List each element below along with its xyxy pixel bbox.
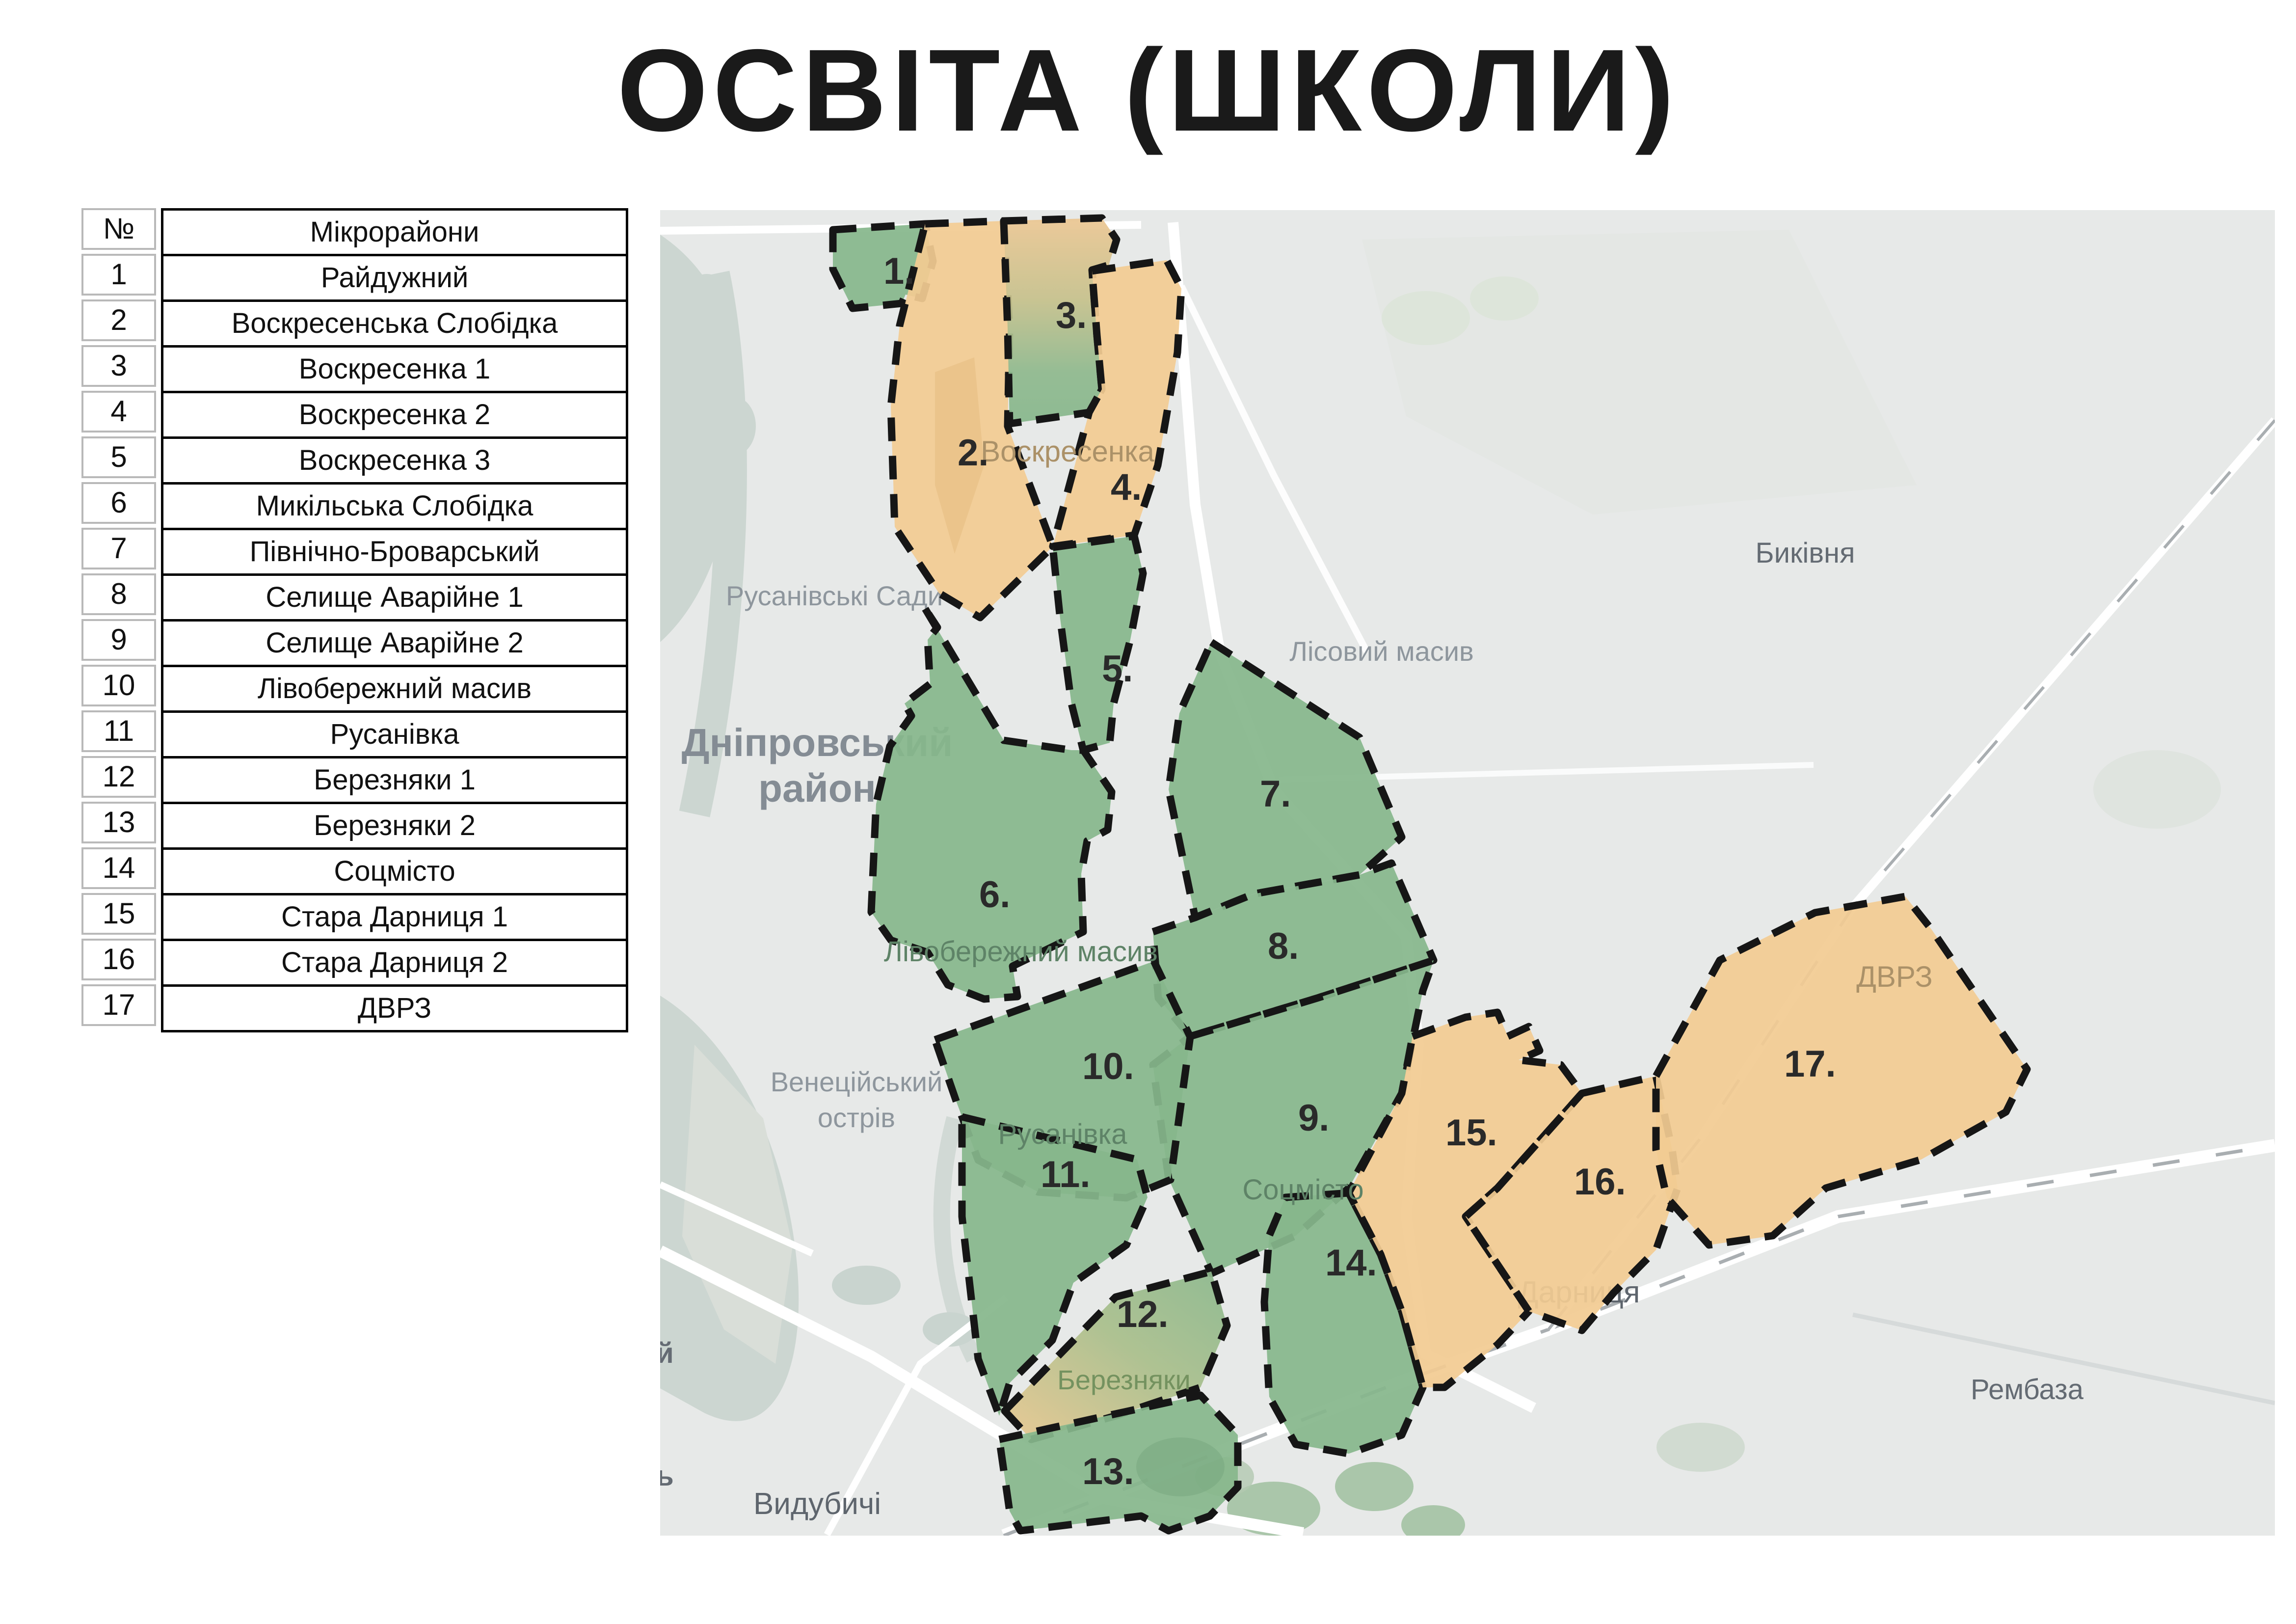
map-label-rusanivski-sady: Русанівські Сади [726,580,943,611]
region-number-2: 2. [958,432,988,474]
lake [680,274,734,352]
map-label-venetsiiskyi-ostriv: острів [818,1102,895,1133]
city-districts-map: Русанівські Сади Дніпровський район Лісо… [660,210,2275,1536]
map-label-venetsiiskyi-ostriv: Венеційський [771,1066,943,1097]
legend-row-number: 4 [81,391,156,433]
region-number-7: 7. [1260,773,1291,815]
legend-row-name: Русанівка [161,710,628,758]
page-title: ОСВІТА (ШКОЛИ) [0,24,2296,158]
legend-row-number: 14 [81,847,156,889]
map-label-livoberezhnyi-masyv: Лівобережний масив [884,936,1158,968]
legend-row-number: 11 [81,710,156,752]
legend-row-number: 10 [81,665,156,706]
map-label-sotsmisto: Соцмісто [1242,1174,1363,1206]
legend-row-name: Березняки 2 [161,802,628,850]
legend-row-number: 5 [81,436,156,478]
infographic-page: ОСВІТА (ШКОЛИ) № 1 2 3 4 5 6 7 8 9 10 11… [0,0,2296,1624]
legend-row-number: 16 [81,939,156,980]
legend-row-name: Воскресенська Слобідка [161,299,628,348]
legend-row-name: Північно-Броварський [161,528,628,576]
map-label-cut-letter: ь [660,1460,674,1492]
park-patch [1382,291,1470,345]
region-number-15: 15. [1445,1112,1497,1154]
legend-row-number: 1 [81,254,156,296]
region-number-1: 1. [883,250,914,292]
legend-row-number: 9 [81,619,156,661]
legend-row-number: 13 [81,802,156,843]
legend-row-name: Селище Аварійне 1 [161,573,628,622]
region-number-5: 5. [1102,648,1133,690]
region-13-inner-green [1136,1437,1225,1496]
map-label-dvrz: ДВРЗ [1856,960,1933,993]
map-label-voskresenka: Воскресенка [981,435,1154,468]
park-patch [2093,750,2221,829]
forest-patch [1656,1423,1745,1472]
legend-name-column: Мікрорайони Райдужний Воскресенська Слоб… [161,208,628,1032]
legend-row-number: 15 [81,893,156,935]
region-number-16: 16. [1574,1161,1626,1203]
lake [712,397,756,456]
legend-row-name: Березняки 1 [161,756,628,804]
forest-patch [1335,1462,1414,1511]
legend-row-name: Воскресенка 3 [161,436,628,485]
region-number-8: 8. [1268,925,1299,967]
legend-row-name: Лівобережний масив [161,665,628,713]
legend-row-name: Стара Дарниця 1 [161,893,628,941]
legend-row-number: 7 [81,528,156,569]
map-label-cut-letter: й [660,1337,674,1369]
region-number-9: 9. [1298,1097,1329,1139]
map-label-rusanivka: Русанівка [998,1118,1128,1150]
region-number-6: 6. [979,874,1010,916]
legend-number-column: № 1 2 3 4 5 6 7 8 9 10 11 12 13 14 15 16… [81,208,156,1030]
legend-row-number: 12 [81,756,156,798]
map-label-lisovyi-masyv: Лісовий масив [1289,636,1474,667]
legend-row-name: Стара Дарниця 2 [161,939,628,987]
map-label-vydubychi: Видубичі [753,1487,881,1521]
map-label-dniprovskyi-raion: район [758,766,876,810]
region-number-17: 17. [1784,1043,1836,1085]
legend-row-name: Воскресенка 2 [161,391,628,439]
park-patch [1470,276,1539,321]
map-canvas: Русанівські Сади Дніпровський район Лісо… [660,210,2275,1536]
legend-row-number: 17 [81,984,156,1026]
legend-row-name: Микільська Слобідка [161,482,628,530]
region-number-4: 4. [1111,466,1142,508]
legend-header-name: Мікрорайони [161,208,628,256]
region-number-10: 10. [1082,1046,1134,1087]
legend-row-name: Райдужний [161,254,628,302]
map-label-berezniaky: Березняки [1057,1364,1191,1395]
legend-row-name: ДВРЗ [161,984,628,1032]
legend-row-number: 3 [81,345,156,387]
region-number-13: 13. [1082,1451,1134,1492]
legend-header-number: № [81,208,156,250]
region-number-12: 12. [1117,1294,1169,1335]
region-number-11: 11. [1041,1154,1090,1195]
legend-row-number: 2 [81,299,156,341]
legend-row-name: Селище Аварійне 2 [161,619,628,667]
legend-row-name: Воскресенка 1 [161,345,628,393]
map-label-bykivnia: Биківня [1756,537,1855,569]
legend-row-number: 6 [81,482,156,524]
region-number-3: 3. [1056,295,1087,336]
map-label-rembaza: Рембаза [1971,1374,2084,1406]
legend-row-number: 8 [81,573,156,615]
region-number-14: 14. [1325,1242,1377,1284]
legend-row-name: Соцмісто [161,847,628,895]
lake [832,1266,901,1305]
